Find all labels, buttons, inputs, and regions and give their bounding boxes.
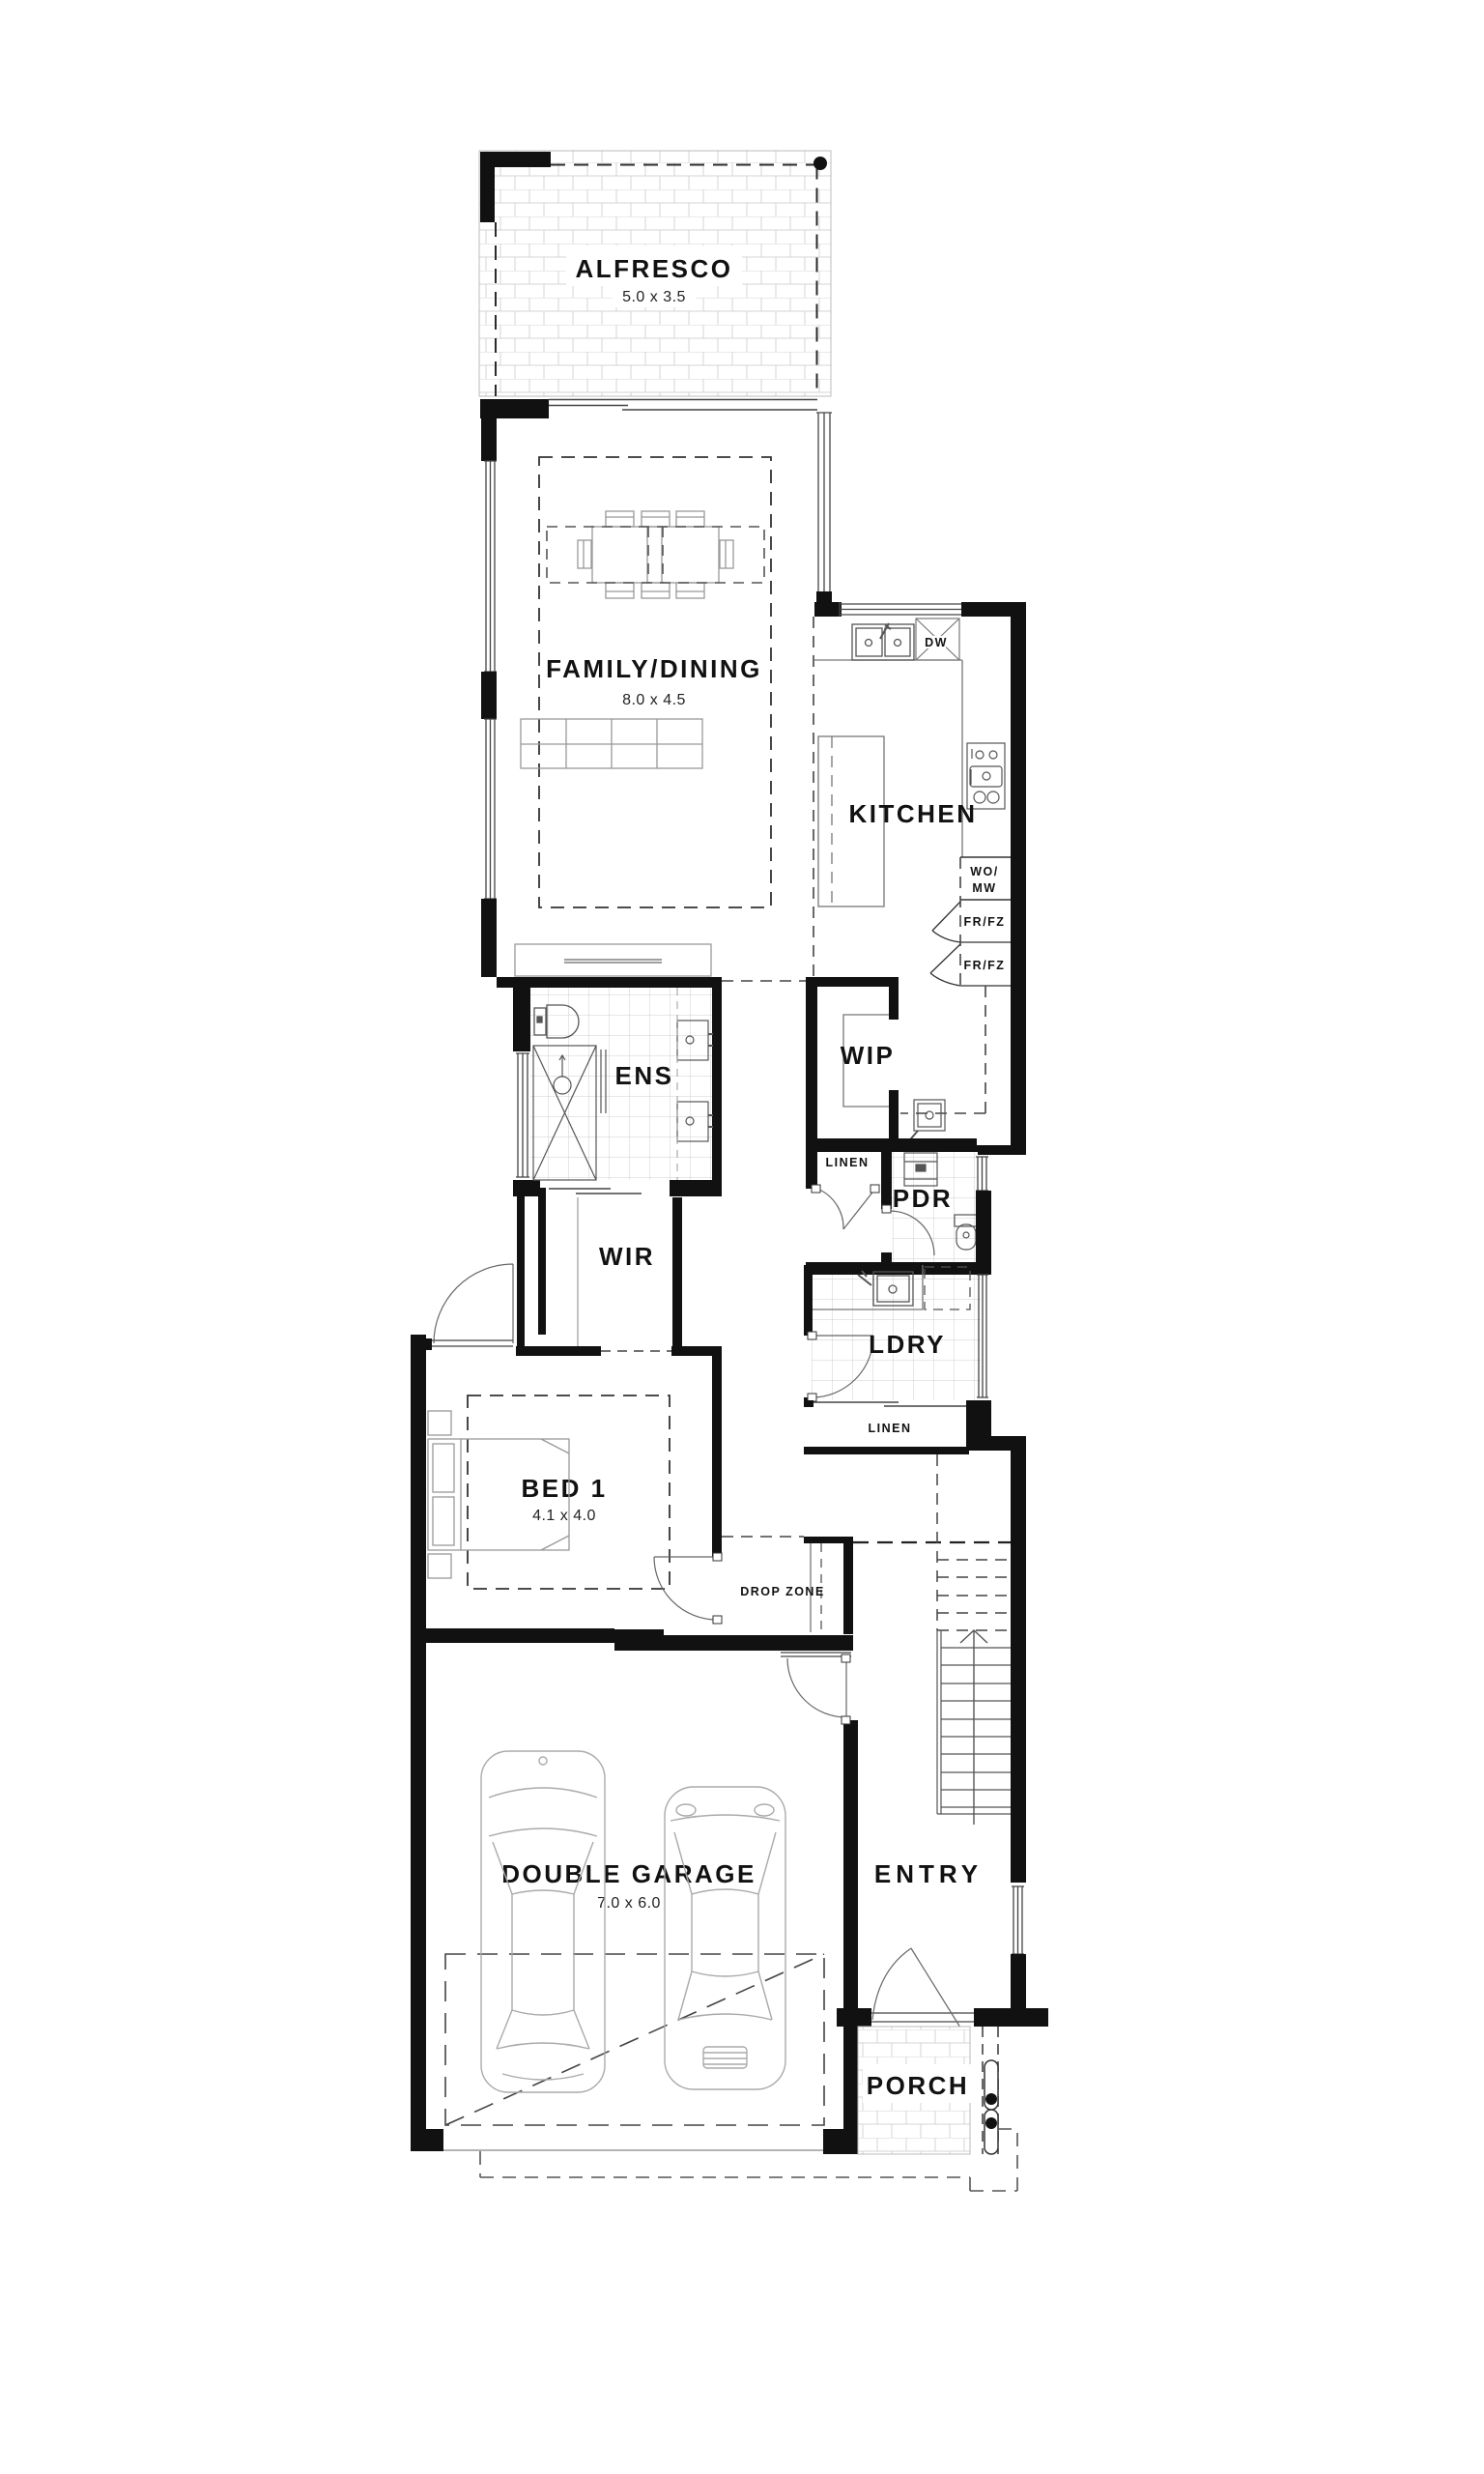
svg-text:4.1 x 4.0: 4.1 x 4.0 [532, 1508, 596, 1524]
svg-text:7.0 x 6.0: 7.0 x 6.0 [597, 1895, 661, 1912]
svg-text:WIR: WIR [599, 1242, 655, 1271]
svg-text:DW: DW [925, 636, 948, 649]
svg-text:ENTRY: ENTRY [874, 1859, 983, 1888]
svg-text:LINEN: LINEN [869, 1422, 912, 1435]
svg-text:8.0 x 4.5: 8.0 x 4.5 [622, 692, 686, 708]
svg-text:WIP: WIP [841, 1041, 896, 1070]
svg-text:DROP ZONE: DROP ZONE [740, 1585, 825, 1598]
svg-text:MW: MW [972, 881, 996, 895]
svg-text:KITCHEN: KITCHEN [848, 799, 977, 828]
svg-text:LDRY: LDRY [869, 1330, 946, 1359]
svg-text:LINEN: LINEN [826, 1156, 870, 1169]
svg-text:FR/FZ: FR/FZ [964, 959, 1006, 972]
svg-text:PORCH: PORCH [867, 2071, 969, 2100]
svg-text:5.0 x 3.5: 5.0 x 3.5 [622, 289, 686, 305]
svg-text:FR/FZ: FR/FZ [964, 915, 1006, 929]
svg-text:BED 1: BED 1 [521, 1474, 607, 1503]
svg-text:DOUBLE GARAGE: DOUBLE GARAGE [501, 1859, 756, 1888]
svg-text:FAMILY/DINING: FAMILY/DINING [546, 654, 762, 683]
svg-text:ENS: ENS [615, 1061, 674, 1090]
svg-text:ALFRESCO: ALFRESCO [576, 254, 733, 283]
svg-text:PDR: PDR [893, 1184, 953, 1213]
svg-text:WO/: WO/ [970, 865, 999, 878]
